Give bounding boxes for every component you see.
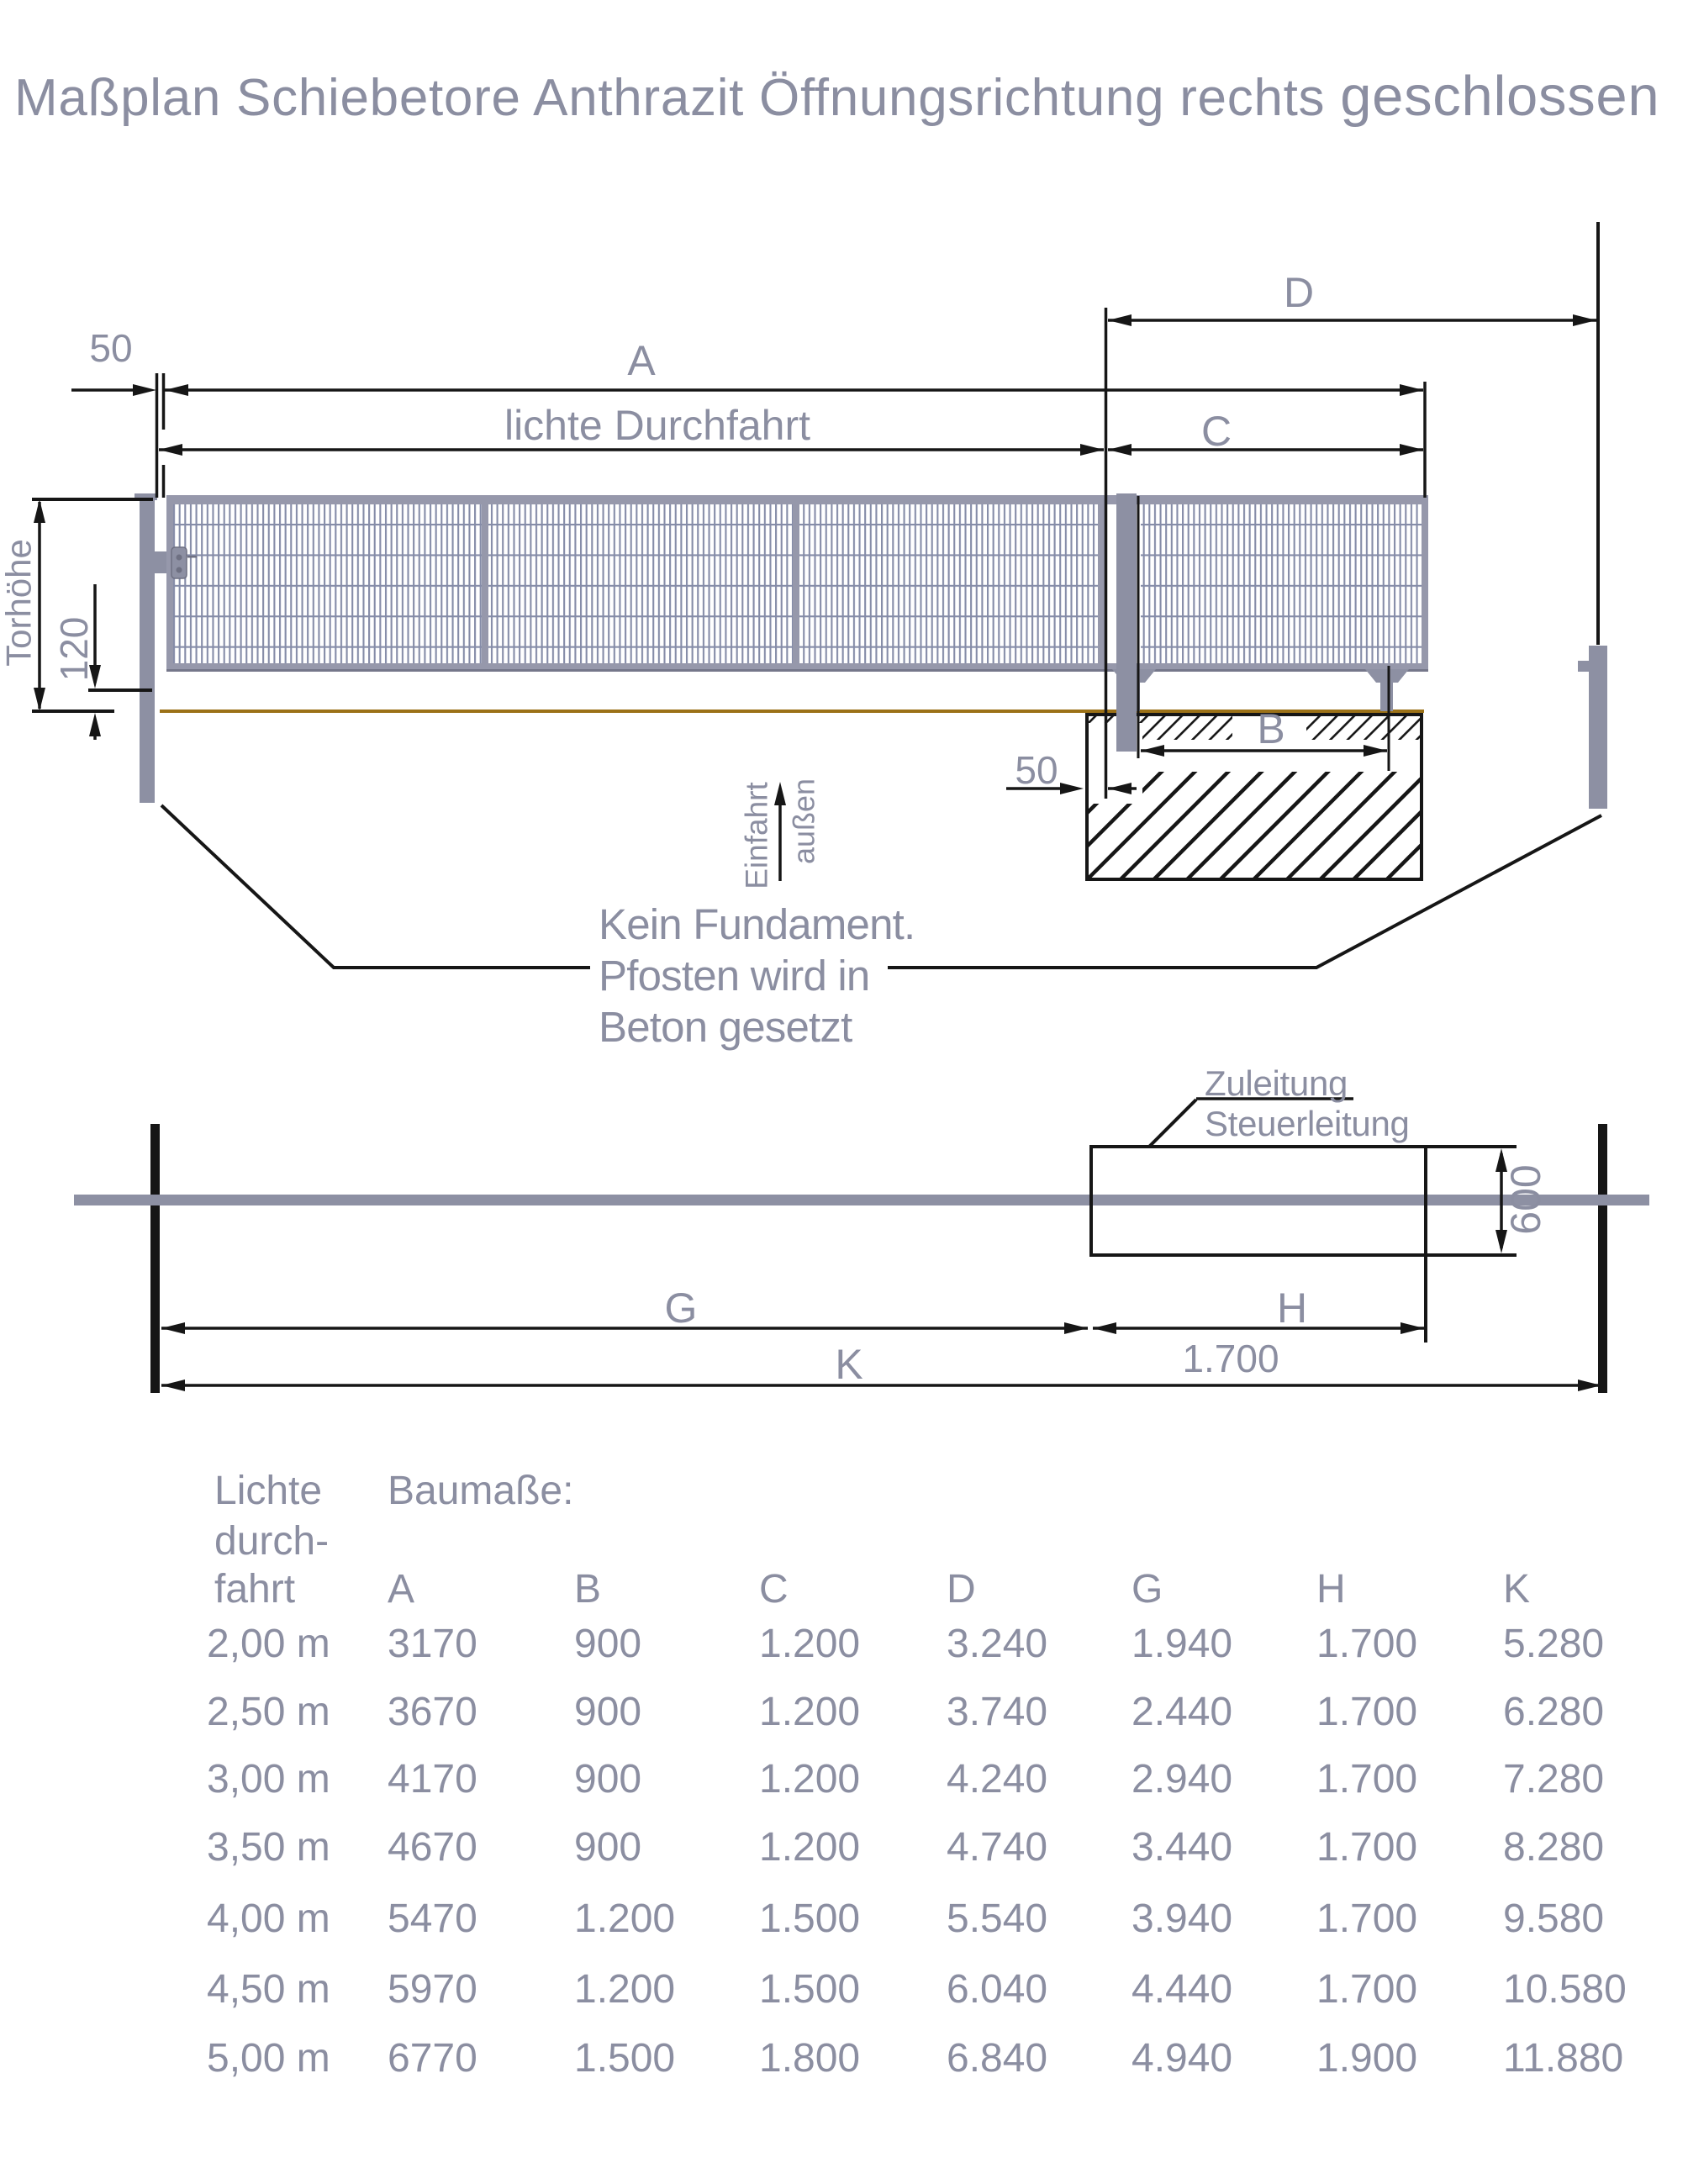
svg-text:G: G xyxy=(665,1285,698,1332)
svg-text:H: H xyxy=(1277,1285,1307,1332)
svg-text:900: 900 xyxy=(574,1825,641,1870)
svg-text:1.700: 1.700 xyxy=(1316,1967,1417,2012)
svg-text:1.200: 1.200 xyxy=(574,1967,675,2012)
svg-text:4.240: 4.240 xyxy=(947,1757,1047,1802)
svg-text:D: D xyxy=(947,1567,976,1612)
svg-text:Torhöhe: Torhöhe xyxy=(0,539,39,667)
svg-text:C: C xyxy=(759,1567,789,1612)
svg-text:120: 120 xyxy=(52,617,96,682)
svg-text:1.200: 1.200 xyxy=(759,1622,860,1666)
svg-text:50: 50 xyxy=(1015,748,1058,792)
svg-text:B: B xyxy=(1257,705,1284,752)
svg-text:4,50 m: 4,50 m xyxy=(207,1967,330,2012)
svg-text:10.580: 10.580 xyxy=(1503,1967,1627,2012)
svg-text:Lichte: Lichte xyxy=(214,1469,322,1513)
svg-text:1.500: 1.500 xyxy=(574,2036,675,2081)
svg-text:1.900: 1.900 xyxy=(1316,2036,1417,2081)
svg-text:2,00 m: 2,00 m xyxy=(207,1622,330,1666)
svg-text:900: 900 xyxy=(574,1757,641,1802)
svg-text:durch-: durch- xyxy=(214,1519,329,1564)
svg-text:1.700: 1.700 xyxy=(1316,1896,1417,1941)
svg-text:A: A xyxy=(627,337,656,384)
svg-text:Pfosten wird in: Pfosten wird in xyxy=(599,952,870,1000)
svg-text:4,00 m: 4,00 m xyxy=(207,1896,330,1941)
svg-text:8.280: 8.280 xyxy=(1503,1825,1604,1870)
svg-text:600: 600 xyxy=(1502,1164,1549,1234)
svg-text:außen: außen xyxy=(787,778,821,864)
svg-text:Beton gesetzt: Beton gesetzt xyxy=(599,1003,852,1051)
svg-text:Steuerleitung: Steuerleitung xyxy=(1205,1104,1410,1143)
svg-text:5.280: 5.280 xyxy=(1503,1622,1604,1666)
svg-text:Baumaße:: Baumaße: xyxy=(388,1469,573,1513)
svg-text:B: B xyxy=(574,1567,601,1612)
svg-text:D: D xyxy=(1284,269,1314,316)
svg-text:C: C xyxy=(1201,408,1232,455)
svg-text:50: 50 xyxy=(89,326,132,370)
svg-text:H: H xyxy=(1316,1567,1346,1612)
svg-text:2.940: 2.940 xyxy=(1131,1757,1232,1802)
svg-text:4.940: 4.940 xyxy=(1131,2036,1232,2081)
svg-text:4670: 4670 xyxy=(388,1825,477,1870)
svg-text:6770: 6770 xyxy=(388,2036,477,2081)
svg-text:7.280: 7.280 xyxy=(1503,1757,1604,1802)
svg-text:1.700: 1.700 xyxy=(1316,1757,1417,1802)
svg-text:1.200: 1.200 xyxy=(759,1757,860,1802)
svg-text:2.440: 2.440 xyxy=(1131,1690,1232,1734)
svg-text:1.200: 1.200 xyxy=(574,1896,675,1941)
svg-text:900: 900 xyxy=(574,1690,641,1734)
svg-text:Zuleitung: Zuleitung xyxy=(1205,1063,1348,1103)
svg-text:2,50 m: 2,50 m xyxy=(207,1690,330,1734)
svg-text:fahrt: fahrt xyxy=(214,1567,295,1612)
svg-text:3170: 3170 xyxy=(388,1622,477,1666)
svg-text:K: K xyxy=(1503,1567,1530,1612)
svg-text:Kein Fundament.: Kein Fundament. xyxy=(599,900,915,948)
svg-text:3,50 m: 3,50 m xyxy=(207,1825,330,1870)
svg-text:1.500: 1.500 xyxy=(759,1967,860,2012)
svg-text:3.940: 3.940 xyxy=(1131,1896,1232,1941)
svg-text:5470: 5470 xyxy=(388,1896,477,1941)
svg-text:5970: 5970 xyxy=(388,1967,477,2012)
svg-text:1.200: 1.200 xyxy=(759,1825,860,1870)
svg-text:Maßplan Schiebetore Anthrazit: Maßplan Schiebetore Anthrazit Öffnungsri… xyxy=(14,65,1659,128)
svg-text:5,00 m: 5,00 m xyxy=(207,2036,330,2081)
svg-text:9.580: 9.580 xyxy=(1503,1896,1604,1941)
svg-text:1.940: 1.940 xyxy=(1131,1622,1232,1666)
svg-text:6.280: 6.280 xyxy=(1503,1690,1604,1734)
svg-text:3670: 3670 xyxy=(388,1690,477,1734)
svg-text:3.240: 3.240 xyxy=(947,1622,1047,1666)
svg-text:Einfahrt: Einfahrt xyxy=(740,782,774,889)
svg-text:4.740: 4.740 xyxy=(947,1825,1047,1870)
svg-text:3.740: 3.740 xyxy=(947,1690,1047,1734)
svg-text:G: G xyxy=(1131,1567,1163,1612)
svg-text:6.840: 6.840 xyxy=(947,2036,1047,2081)
svg-text:1.700: 1.700 xyxy=(1316,1690,1417,1734)
svg-text:lichte Durchfahrt: lichte Durchfahrt xyxy=(504,402,810,449)
svg-text:5.540: 5.540 xyxy=(947,1896,1047,1941)
svg-text:1.700: 1.700 xyxy=(1182,1337,1279,1380)
svg-text:3,00 m: 3,00 m xyxy=(207,1757,330,1802)
svg-text:K: K xyxy=(835,1341,862,1388)
svg-text:4.440: 4.440 xyxy=(1131,1967,1232,2012)
svg-text:1.800: 1.800 xyxy=(759,2036,860,2081)
svg-text:1.500: 1.500 xyxy=(759,1896,860,1941)
svg-text:A: A xyxy=(388,1567,414,1612)
svg-text:900: 900 xyxy=(574,1622,641,1666)
svg-text:4170: 4170 xyxy=(388,1757,477,1802)
svg-text:1.700: 1.700 xyxy=(1316,1622,1417,1666)
svg-text:1.700: 1.700 xyxy=(1316,1825,1417,1870)
svg-text:3.440: 3.440 xyxy=(1131,1825,1232,1870)
svg-text:1.200: 1.200 xyxy=(759,1690,860,1734)
svg-text:6.040: 6.040 xyxy=(947,1967,1047,2012)
svg-text:11.880: 11.880 xyxy=(1503,2036,1623,2081)
